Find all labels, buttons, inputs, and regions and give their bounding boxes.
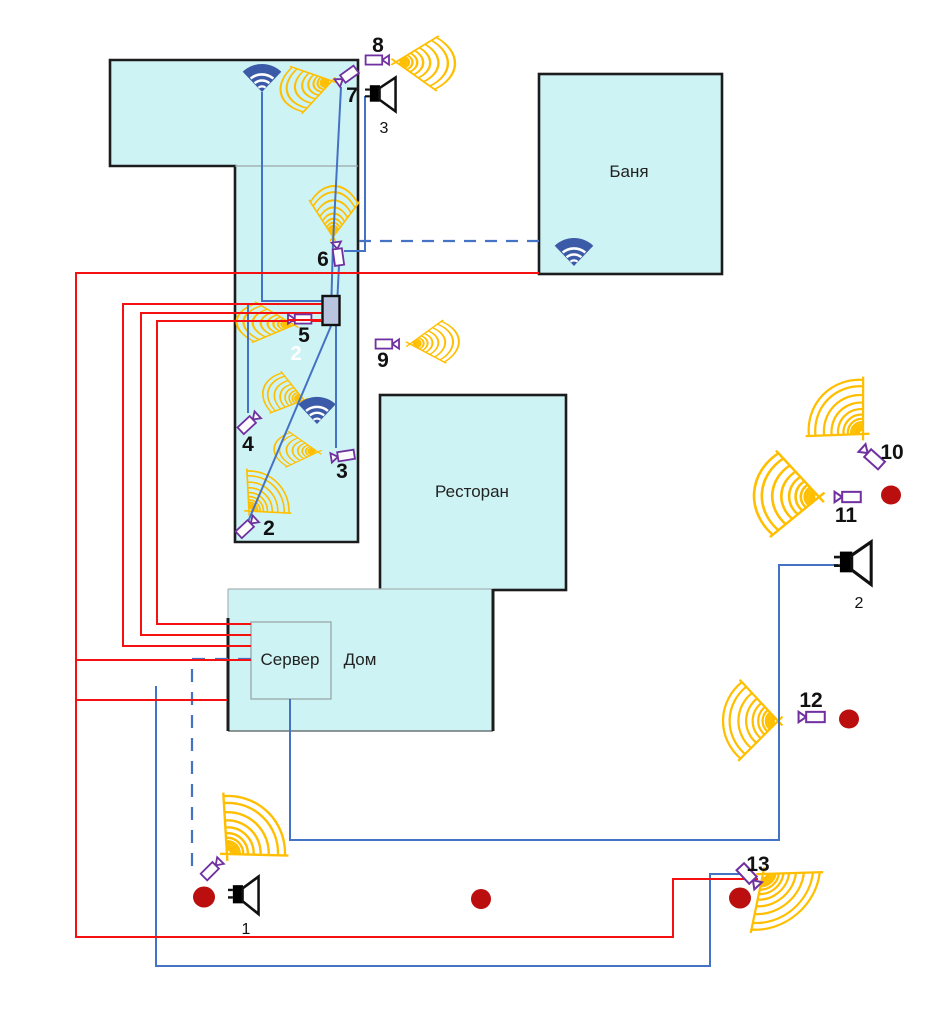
svg-text:9: 9 — [377, 349, 389, 372]
svg-text:12: 12 — [799, 689, 822, 712]
svg-text:3: 3 — [336, 460, 348, 483]
svg-text:7: 7 — [346, 84, 358, 107]
svg-text:3: 3 — [380, 120, 389, 137]
svg-text:Дом: Дом — [344, 650, 377, 669]
svg-text:2: 2 — [855, 595, 864, 612]
svg-text:8: 8 — [372, 34, 384, 57]
svg-text:4: 4 — [242, 433, 254, 456]
svg-text:1: 1 — [242, 921, 251, 938]
svg-text:13: 13 — [746, 853, 769, 876]
svg-text:6: 6 — [317, 248, 329, 271]
svg-text:Баня: Баня — [609, 162, 648, 181]
svg-text:2: 2 — [263, 517, 275, 540]
svg-text:Ресторан: Ресторан — [435, 482, 509, 501]
svg-text:2: 2 — [290, 343, 301, 365]
svg-text:Сервер: Сервер — [261, 650, 320, 669]
svg-text:10: 10 — [880, 441, 903, 464]
svg-text:11: 11 — [835, 504, 858, 527]
